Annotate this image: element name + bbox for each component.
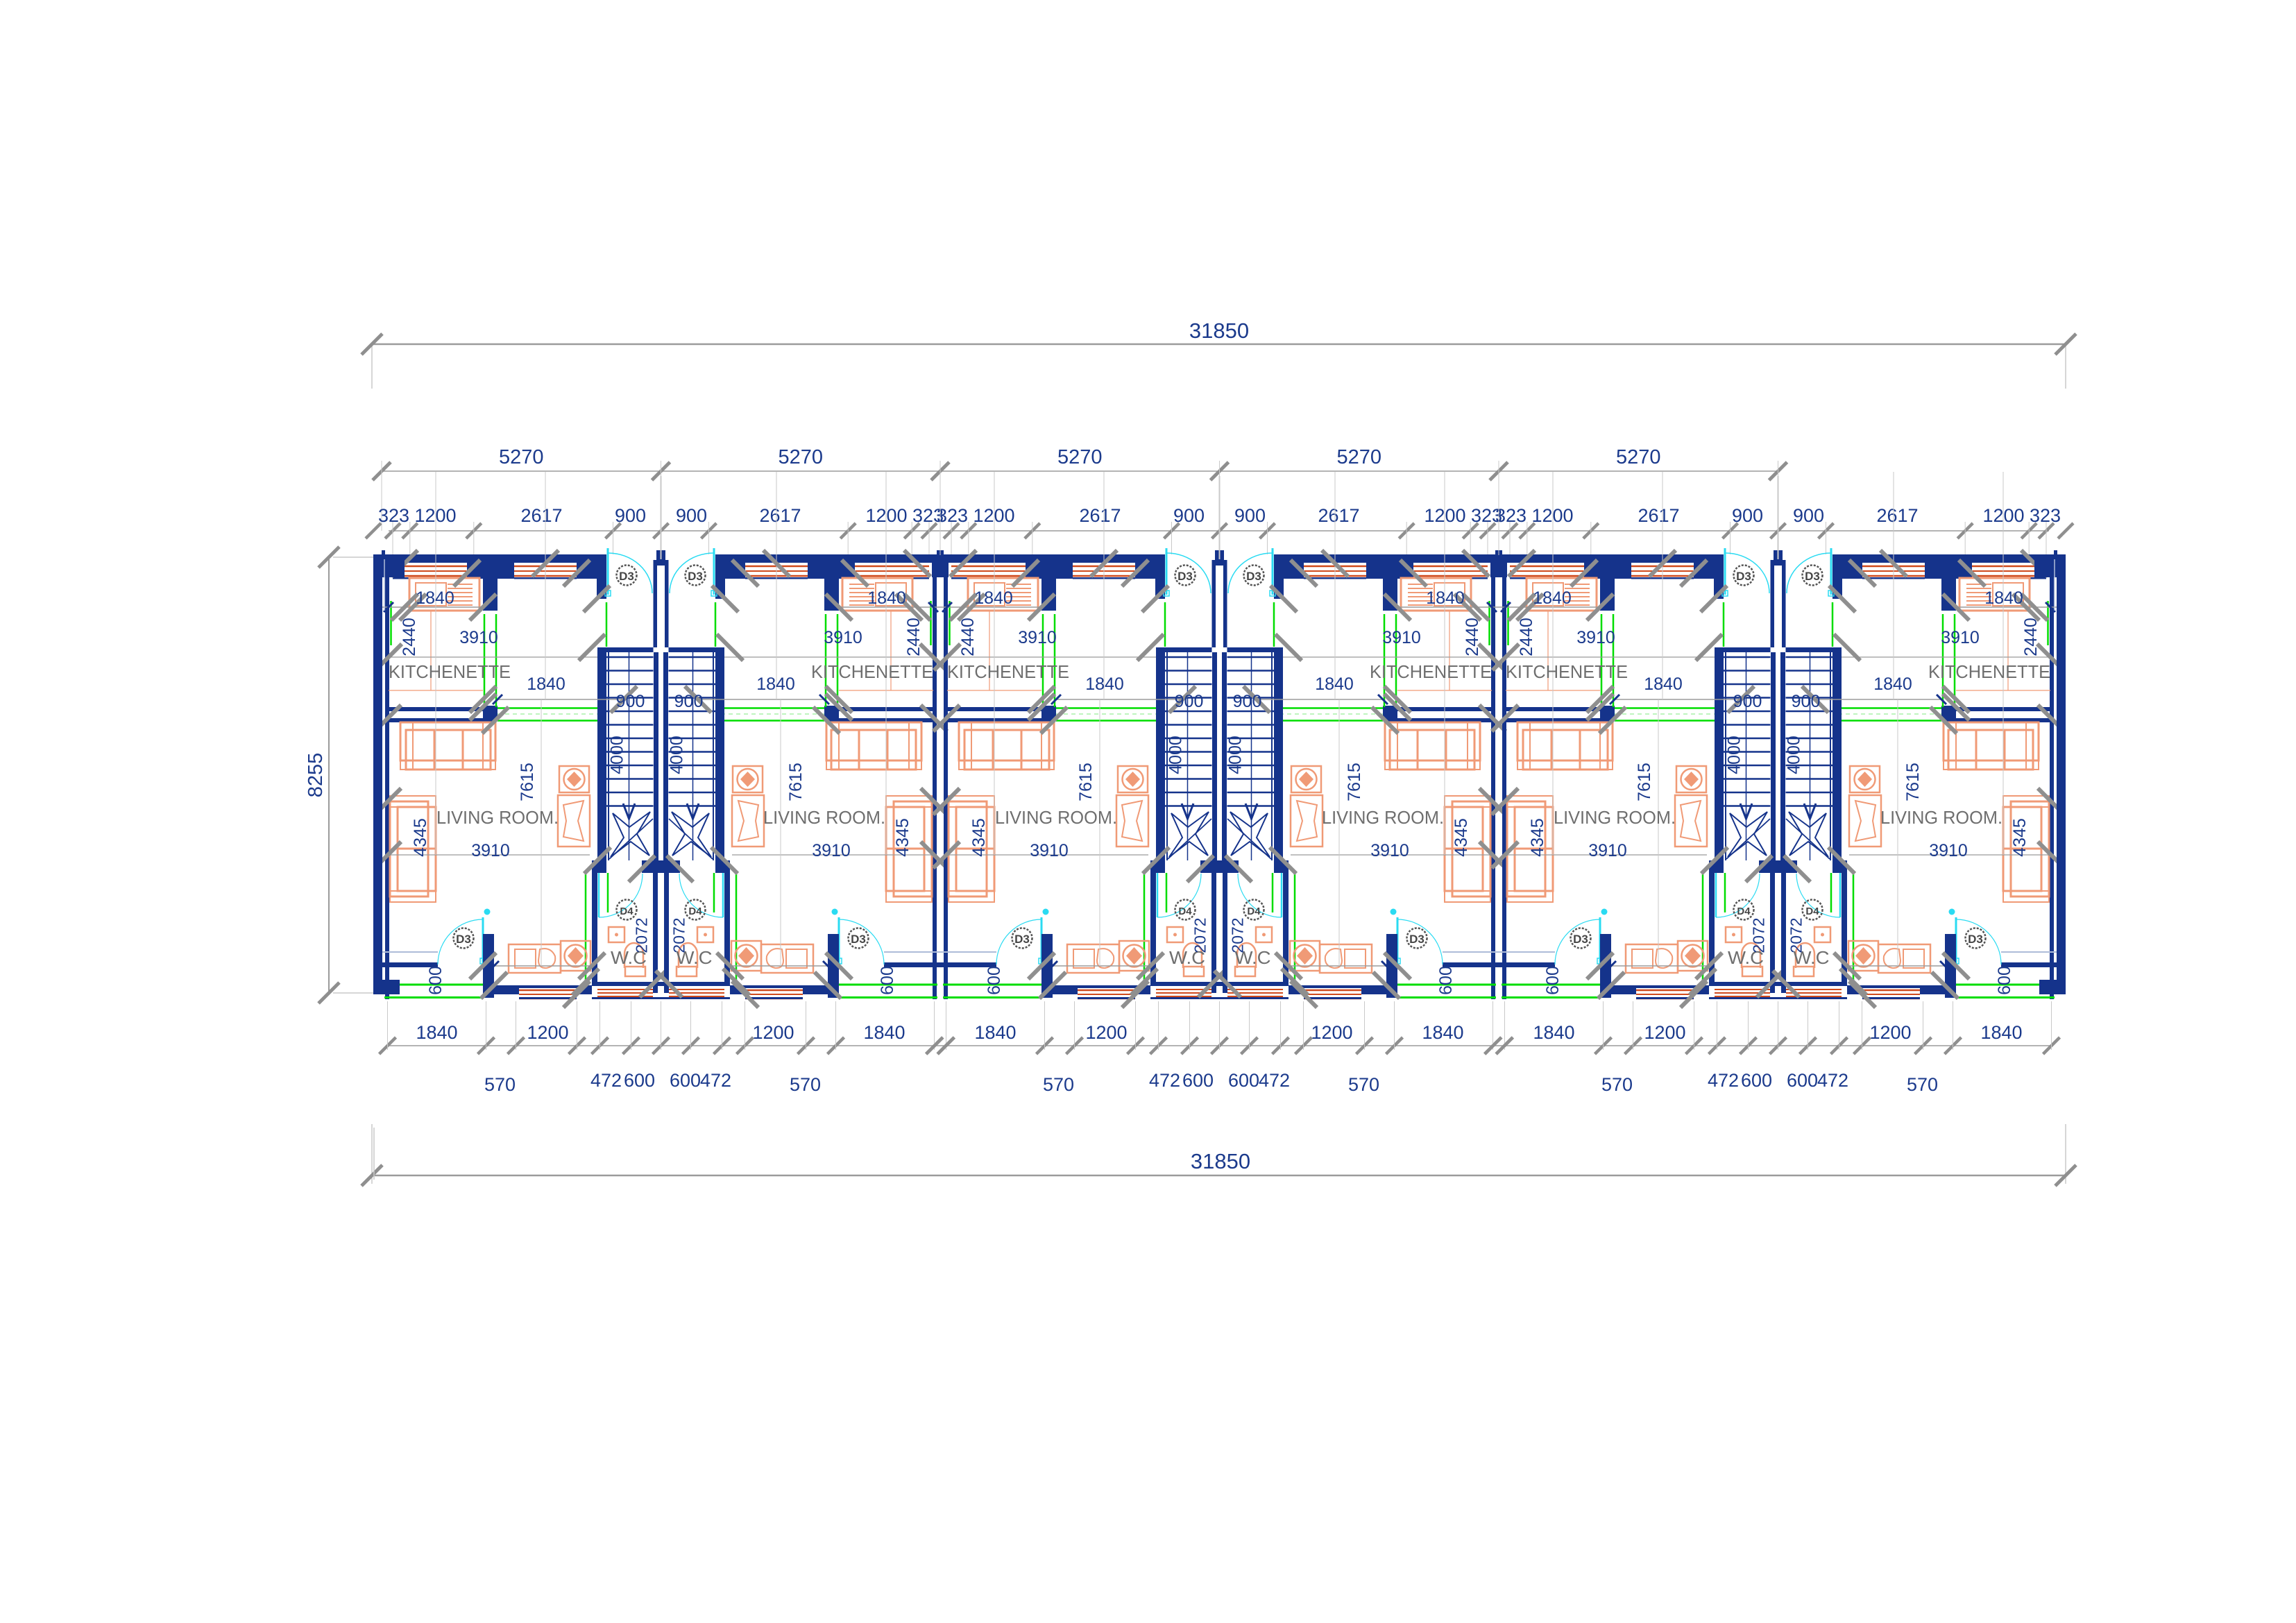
svg-text:4000: 4000 <box>1725 736 1744 774</box>
svg-text:D4: D4 <box>1805 906 1819 917</box>
svg-text:600: 600 <box>1543 966 1563 995</box>
svg-text:323: 323 <box>1495 505 1527 526</box>
svg-text:900: 900 <box>676 505 707 526</box>
svg-text:2072: 2072 <box>1229 917 1247 953</box>
svg-text:2072: 2072 <box>1191 917 1209 953</box>
svg-text:5270: 5270 <box>499 446 544 468</box>
svg-text:3910: 3910 <box>1382 628 1421 647</box>
svg-text:1840: 1840 <box>1984 588 2023 608</box>
svg-text:1840: 1840 <box>416 1022 457 1043</box>
svg-text:8255: 8255 <box>305 753 327 798</box>
svg-text:D3: D3 <box>1573 933 1588 946</box>
svg-text:5270: 5270 <box>1616 446 1661 468</box>
svg-text:5270: 5270 <box>1057 446 1103 468</box>
svg-text:3910: 3910 <box>1929 841 1968 860</box>
svg-text:600: 600 <box>985 966 1004 995</box>
svg-text:472: 472 <box>1149 1070 1180 1091</box>
svg-text:1200: 1200 <box>752 1022 794 1043</box>
svg-text:1840: 1840 <box>1315 674 1354 694</box>
svg-text:7615: 7615 <box>786 763 806 801</box>
svg-text:600: 600 <box>670 1070 701 1091</box>
svg-text:KITCHENETTE: KITCHENETTE <box>389 661 511 682</box>
svg-text:900: 900 <box>1175 692 1204 711</box>
svg-text:4000: 4000 <box>1226 736 1245 774</box>
svg-text:900: 900 <box>1233 692 1262 711</box>
svg-text:LIVING ROOM.: LIVING ROOM. <box>1322 807 1444 828</box>
svg-text:3910: 3910 <box>1370 841 1409 860</box>
svg-text:570: 570 <box>1601 1074 1633 1095</box>
svg-text:KITCHENETTE: KITCHENETTE <box>1370 661 1492 682</box>
svg-text:570: 570 <box>790 1074 821 1095</box>
svg-text:7615: 7615 <box>1903 763 1923 801</box>
svg-text:4345: 4345 <box>969 818 989 857</box>
svg-text:323: 323 <box>378 505 409 526</box>
svg-text:31850: 31850 <box>1189 318 1249 343</box>
svg-text:D3: D3 <box>1805 570 1820 583</box>
svg-text:2617: 2617 <box>1876 505 1918 526</box>
svg-text:600: 600 <box>878 966 897 995</box>
svg-text:31850: 31850 <box>1191 1149 1250 1173</box>
svg-text:2617: 2617 <box>1079 505 1121 526</box>
svg-text:2072: 2072 <box>1750 917 1768 953</box>
svg-text:D4: D4 <box>1247 906 1261 917</box>
svg-text:4345: 4345 <box>1452 818 1471 857</box>
svg-text:7615: 7615 <box>1076 763 1096 801</box>
svg-text:4000: 4000 <box>1785 736 1804 774</box>
svg-text:LIVING ROOM.: LIVING ROOM. <box>1880 807 2002 828</box>
svg-text:7615: 7615 <box>518 763 537 801</box>
svg-text:3910: 3910 <box>1576 628 1615 647</box>
svg-text:2440: 2440 <box>1463 618 1482 656</box>
svg-text:3910: 3910 <box>824 628 862 647</box>
svg-text:900: 900 <box>1732 505 1763 526</box>
svg-text:2440: 2440 <box>904 618 924 656</box>
svg-text:D3: D3 <box>1246 570 1261 583</box>
svg-text:D3: D3 <box>851 933 866 946</box>
svg-text:323: 323 <box>2030 505 2061 526</box>
svg-text:1840: 1840 <box>1085 674 1124 694</box>
svg-text:2440: 2440 <box>958 618 978 656</box>
svg-text:900: 900 <box>1733 692 1762 711</box>
svg-text:2440: 2440 <box>1517 618 1536 656</box>
svg-text:LIVING ROOM.: LIVING ROOM. <box>436 807 559 828</box>
svg-text:3910: 3910 <box>1941 628 1980 647</box>
svg-text:4000: 4000 <box>1166 736 1186 774</box>
svg-text:4000: 4000 <box>608 736 627 774</box>
svg-text:2072: 2072 <box>633 917 651 953</box>
svg-text:570: 570 <box>1907 1074 1938 1095</box>
svg-text:600: 600 <box>624 1070 655 1091</box>
svg-text:2440: 2440 <box>2021 618 2041 656</box>
svg-text:570: 570 <box>1043 1074 1074 1095</box>
svg-text:3910: 3910 <box>471 841 510 860</box>
svg-text:900: 900 <box>674 692 704 711</box>
svg-text:D4: D4 <box>620 906 633 917</box>
svg-text:D3: D3 <box>619 570 634 583</box>
svg-text:900: 900 <box>616 692 645 711</box>
svg-text:D4: D4 <box>1737 906 1751 917</box>
svg-text:4345: 4345 <box>1528 818 1547 857</box>
svg-text:1840: 1840 <box>1533 588 1572 608</box>
svg-text:2617: 2617 <box>1318 505 1359 526</box>
svg-text:5270: 5270 <box>779 446 824 468</box>
svg-text:472: 472 <box>590 1070 622 1091</box>
svg-text:2617: 2617 <box>520 505 562 526</box>
svg-text:2072: 2072 <box>1787 917 1805 953</box>
svg-text:600: 600 <box>1787 1070 1818 1091</box>
svg-text:1840: 1840 <box>527 674 566 694</box>
svg-text:7615: 7615 <box>1345 763 1364 801</box>
svg-text:KITCHENETTE: KITCHENETTE <box>1506 661 1628 682</box>
svg-text:600: 600 <box>1182 1070 1214 1091</box>
svg-text:KITCHENETTE: KITCHENETTE <box>811 661 933 682</box>
svg-text:4345: 4345 <box>411 818 430 857</box>
svg-text:570: 570 <box>484 1074 516 1095</box>
svg-text:7615: 7615 <box>1635 763 1654 801</box>
svg-text:1840: 1840 <box>863 1022 905 1043</box>
svg-text:D3: D3 <box>1177 570 1193 583</box>
svg-text:600: 600 <box>1436 966 1456 995</box>
svg-text:1200: 1200 <box>1869 1022 1911 1043</box>
svg-text:1840: 1840 <box>974 1022 1016 1043</box>
svg-text:1200: 1200 <box>1311 1022 1352 1043</box>
svg-text:1840: 1840 <box>1644 674 1683 694</box>
svg-text:600: 600 <box>426 966 445 995</box>
svg-text:1200: 1200 <box>527 1022 568 1043</box>
svg-text:1840: 1840 <box>1873 674 1912 694</box>
svg-text:600: 600 <box>1995 966 2014 995</box>
svg-text:323: 323 <box>937 505 968 526</box>
svg-text:3910: 3910 <box>1030 841 1069 860</box>
svg-text:1840: 1840 <box>1980 1022 2022 1043</box>
svg-text:3910: 3910 <box>812 841 851 860</box>
svg-text:472: 472 <box>1259 1070 1290 1091</box>
svg-text:D3: D3 <box>1736 570 1751 583</box>
svg-text:4345: 4345 <box>893 818 912 857</box>
svg-text:5270: 5270 <box>1337 446 1382 468</box>
svg-text:D3: D3 <box>456 933 471 946</box>
svg-text:2072: 2072 <box>670 917 688 953</box>
svg-text:D3: D3 <box>1014 933 1030 946</box>
svg-text:1840: 1840 <box>867 588 906 608</box>
svg-text:1840: 1840 <box>756 674 795 694</box>
svg-text:900: 900 <box>1234 505 1266 526</box>
svg-text:4000: 4000 <box>667 736 687 774</box>
svg-text:3910: 3910 <box>1588 841 1627 860</box>
svg-text:1840: 1840 <box>1422 1022 1463 1043</box>
svg-text:2617: 2617 <box>759 505 801 526</box>
svg-text:1840: 1840 <box>974 588 1013 608</box>
svg-text:1840: 1840 <box>1426 588 1465 608</box>
svg-text:LIVING ROOM.: LIVING ROOM. <box>763 807 885 828</box>
svg-text:D3: D3 <box>1409 933 1425 946</box>
svg-text:LIVING ROOM.: LIVING ROOM. <box>995 807 1117 828</box>
svg-text:900: 900 <box>615 505 646 526</box>
svg-text:D3: D3 <box>1968 933 1983 946</box>
svg-text:2617: 2617 <box>1638 505 1679 526</box>
svg-text:600: 600 <box>1228 1070 1259 1091</box>
svg-text:1840: 1840 <box>416 588 454 608</box>
svg-text:KITCHENETTE: KITCHENETTE <box>1928 661 2050 682</box>
svg-text:2440: 2440 <box>400 618 419 656</box>
svg-text:570: 570 <box>1348 1074 1379 1095</box>
svg-text:472: 472 <box>1817 1070 1848 1091</box>
svg-text:D4: D4 <box>1178 906 1192 917</box>
svg-text:KITCHENETTE: KITCHENETTE <box>947 661 1069 682</box>
svg-text:3910: 3910 <box>459 628 498 647</box>
svg-text:1200: 1200 <box>1644 1022 1685 1043</box>
svg-text:1200: 1200 <box>1085 1022 1127 1043</box>
svg-text:4345: 4345 <box>2010 818 2030 857</box>
svg-text:472: 472 <box>1708 1070 1739 1091</box>
svg-text:LIVING ROOM.: LIVING ROOM. <box>1554 807 1676 828</box>
svg-text:1840: 1840 <box>1533 1022 1574 1043</box>
svg-text:900: 900 <box>1173 505 1205 526</box>
svg-text:600: 600 <box>1741 1070 1772 1091</box>
svg-text:900: 900 <box>1793 505 1824 526</box>
svg-text:472: 472 <box>700 1070 731 1091</box>
svg-text:3910: 3910 <box>1018 628 1057 647</box>
svg-text:900: 900 <box>1792 692 1821 711</box>
svg-text:D4: D4 <box>688 906 702 917</box>
svg-text:D3: D3 <box>688 570 703 583</box>
